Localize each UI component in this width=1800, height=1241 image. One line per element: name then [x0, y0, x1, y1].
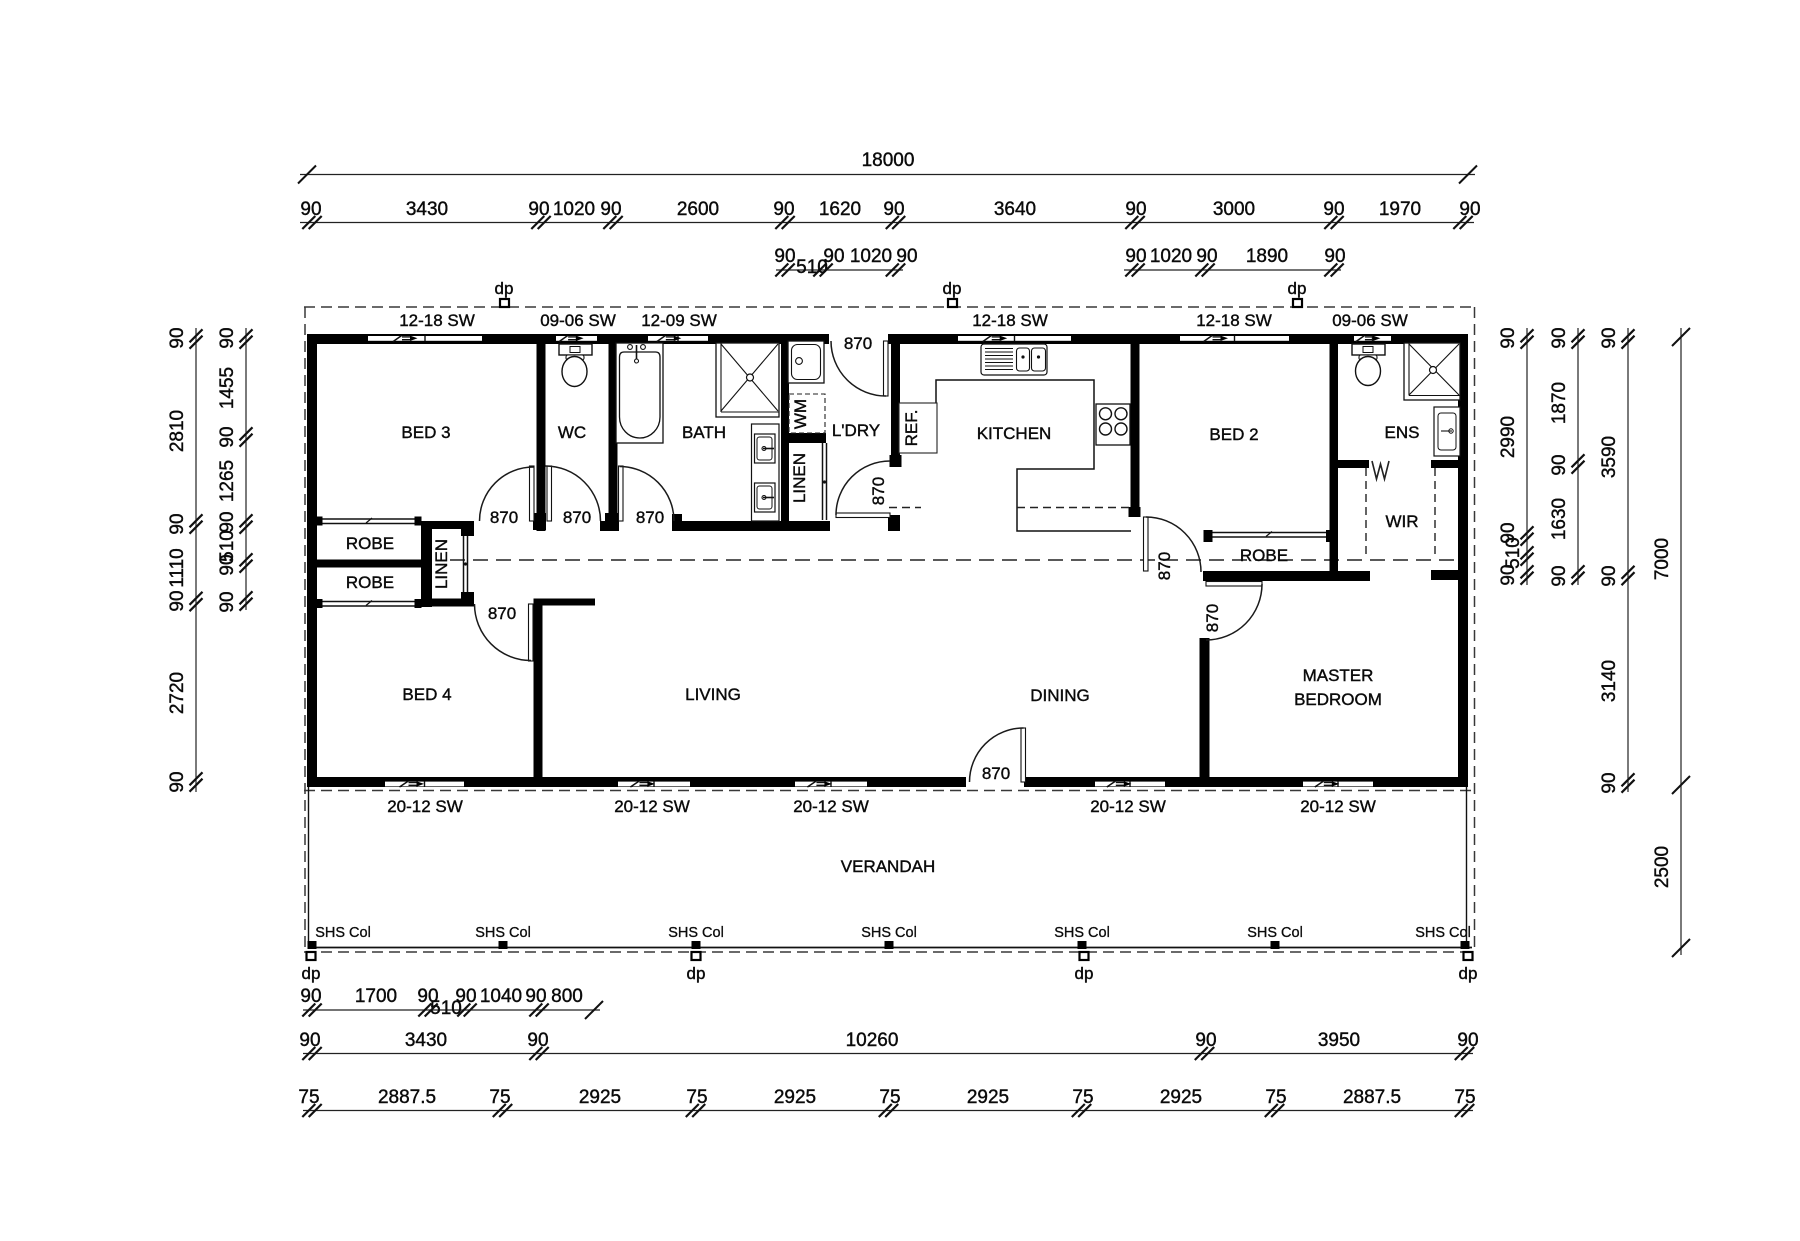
- svg-text:870: 870: [1155, 552, 1174, 580]
- svg-text:1040: 1040: [480, 986, 522, 1007]
- svg-text:90: 90: [1125, 246, 1146, 267]
- svg-text:20-12 SW: 20-12 SW: [1090, 797, 1166, 816]
- svg-text:870: 870: [488, 604, 516, 623]
- svg-text:dp: dp: [687, 964, 706, 983]
- svg-text:90: 90: [528, 199, 549, 220]
- svg-text:ROBE: ROBE: [346, 573, 394, 592]
- svg-text:REF.: REF.: [902, 410, 921, 447]
- svg-text:LINEN: LINEN: [432, 539, 451, 589]
- svg-text:2887.5: 2887.5: [378, 1087, 436, 1108]
- svg-text:SHS Col: SHS Col: [475, 925, 531, 941]
- svg-text:2720: 2720: [167, 672, 188, 714]
- svg-text:870: 870: [1203, 604, 1222, 632]
- svg-text:90: 90: [217, 426, 238, 447]
- svg-text:12-18 SW: 12-18 SW: [399, 311, 475, 330]
- svg-text:KITCHEN: KITCHEN: [977, 424, 1052, 443]
- svg-text:LINEN: LINEN: [790, 453, 809, 503]
- svg-text:WC: WC: [558, 423, 586, 442]
- svg-text:L'DRY: L'DRY: [832, 421, 880, 440]
- svg-text:90: 90: [1599, 327, 1620, 348]
- svg-text:1455: 1455: [217, 367, 238, 409]
- svg-text:BED 2: BED 2: [1209, 425, 1258, 444]
- svg-text:dp: dp: [1459, 964, 1478, 983]
- svg-text:90: 90: [217, 591, 238, 612]
- svg-text:3430: 3430: [406, 199, 448, 220]
- svg-text:90: 90: [1323, 199, 1344, 220]
- svg-text:2925: 2925: [579, 1087, 621, 1108]
- svg-text:SHS Col: SHS Col: [861, 925, 917, 941]
- svg-text:dp: dp: [943, 279, 962, 298]
- svg-text:90: 90: [527, 1030, 548, 1051]
- svg-text:870: 870: [563, 508, 591, 527]
- svg-text:1870: 1870: [1549, 382, 1570, 424]
- svg-text:510: 510: [796, 257, 828, 278]
- svg-text:1020: 1020: [1150, 246, 1192, 267]
- svg-text:870: 870: [869, 477, 888, 505]
- svg-text:3640: 3640: [994, 199, 1036, 220]
- svg-text:2925: 2925: [967, 1087, 1009, 1108]
- svg-text:90: 90: [1324, 246, 1345, 267]
- svg-text:1265: 1265: [217, 460, 238, 502]
- svg-text:ROBE: ROBE: [346, 534, 394, 553]
- svg-text:75: 75: [298, 1087, 319, 1108]
- svg-text:75: 75: [879, 1087, 900, 1108]
- svg-text:90: 90: [217, 554, 238, 575]
- svg-text:90: 90: [1457, 1030, 1478, 1051]
- svg-text:870: 870: [490, 508, 518, 527]
- svg-text:3430: 3430: [405, 1030, 447, 1051]
- svg-text:800: 800: [551, 986, 583, 1007]
- svg-text:90: 90: [600, 199, 621, 220]
- svg-text:510: 510: [430, 998, 462, 1019]
- svg-text:90: 90: [167, 327, 188, 348]
- svg-text:BEDROOM: BEDROOM: [1294, 690, 1382, 709]
- svg-text:3000: 3000: [1213, 199, 1255, 220]
- svg-text:ENS: ENS: [1385, 423, 1420, 442]
- svg-text:1630: 1630: [1549, 498, 1570, 540]
- svg-text:870: 870: [982, 764, 1010, 783]
- svg-text:90: 90: [1549, 565, 1570, 586]
- svg-text:ROBE: ROBE: [1240, 546, 1288, 565]
- svg-text:10260: 10260: [846, 1030, 899, 1051]
- svg-text:1110: 1110: [167, 548, 188, 587]
- svg-text:SHS Col: SHS Col: [1247, 925, 1303, 941]
- svg-text:20-12 SW: 20-12 SW: [614, 797, 690, 816]
- svg-text:75: 75: [1265, 1087, 1286, 1108]
- svg-text:DINING: DINING: [1030, 686, 1090, 705]
- svg-text:90: 90: [1459, 199, 1480, 220]
- svg-text:75: 75: [1454, 1087, 1475, 1108]
- svg-text:90: 90: [167, 590, 188, 611]
- svg-text:90: 90: [883, 199, 904, 220]
- svg-text:SHS Col: SHS Col: [315, 925, 371, 941]
- svg-text:1020: 1020: [850, 246, 892, 267]
- svg-text:dp: dp: [302, 964, 321, 983]
- svg-text:WM: WM: [791, 399, 810, 429]
- svg-text:90: 90: [299, 1030, 320, 1051]
- svg-text:18000: 18000: [862, 150, 915, 171]
- svg-text:20-12 SW: 20-12 SW: [1300, 797, 1376, 816]
- svg-text:SHS Col: SHS Col: [668, 925, 724, 941]
- svg-text:SHS Col: SHS Col: [1054, 925, 1110, 941]
- svg-text:90: 90: [1498, 564, 1519, 585]
- svg-text:12-18 SW: 12-18 SW: [1196, 311, 1272, 330]
- svg-text:WIR: WIR: [1385, 512, 1418, 531]
- svg-text:90: 90: [217, 511, 238, 532]
- svg-text:75: 75: [489, 1087, 510, 1108]
- svg-text:90: 90: [217, 327, 238, 348]
- svg-text:2925: 2925: [774, 1087, 816, 1108]
- svg-text:MASTER: MASTER: [1303, 666, 1374, 685]
- svg-text:1970: 1970: [1379, 199, 1421, 220]
- svg-text:90: 90: [525, 986, 546, 1007]
- svg-text:90: 90: [1196, 246, 1217, 267]
- svg-text:2990: 2990: [1498, 416, 1519, 458]
- svg-text:dp: dp: [1288, 279, 1307, 298]
- svg-text:510: 510: [1503, 537, 1524, 569]
- svg-text:75: 75: [686, 1087, 707, 1108]
- svg-text:90: 90: [1549, 327, 1570, 348]
- svg-text:20-12 SW: 20-12 SW: [387, 797, 463, 816]
- svg-text:2600: 2600: [677, 199, 719, 220]
- svg-text:dp: dp: [1075, 964, 1094, 983]
- svg-text:2925: 2925: [1160, 1087, 1202, 1108]
- svg-text:90: 90: [1125, 199, 1146, 220]
- svg-text:3140: 3140: [1599, 660, 1620, 702]
- svg-text:2887.5: 2887.5: [1343, 1087, 1401, 1108]
- svg-text:7000: 7000: [1652, 538, 1673, 580]
- svg-text:20-12 SW: 20-12 SW: [793, 797, 869, 816]
- svg-text:90: 90: [1498, 327, 1519, 348]
- svg-text:3950: 3950: [1318, 1030, 1360, 1051]
- svg-text:90: 90: [774, 246, 795, 267]
- svg-text:870: 870: [636, 508, 664, 527]
- svg-text:VERANDAH: VERANDAH: [841, 857, 935, 876]
- svg-text:BATH: BATH: [682, 423, 726, 442]
- svg-text:LIVING: LIVING: [685, 685, 741, 704]
- svg-text:90: 90: [300, 199, 321, 220]
- svg-text:2810: 2810: [167, 410, 188, 452]
- svg-text:75: 75: [1072, 1087, 1093, 1108]
- svg-text:90: 90: [167, 771, 188, 792]
- svg-text:BED 3: BED 3: [401, 423, 450, 442]
- svg-text:90: 90: [773, 199, 794, 220]
- svg-text:3590: 3590: [1599, 436, 1620, 478]
- svg-text:90: 90: [167, 513, 188, 534]
- svg-text:12-09 SW: 12-09 SW: [641, 311, 717, 330]
- svg-text:870: 870: [844, 334, 872, 353]
- svg-text:90: 90: [896, 246, 917, 267]
- svg-text:90: 90: [1549, 454, 1570, 475]
- svg-text:90: 90: [1195, 1030, 1216, 1051]
- svg-text:1890: 1890: [1246, 246, 1288, 267]
- svg-text:09-06 SW: 09-06 SW: [540, 311, 616, 330]
- svg-text:09-06 SW: 09-06 SW: [1332, 311, 1408, 330]
- svg-text:1020: 1020: [553, 199, 595, 220]
- svg-text:1700: 1700: [355, 986, 397, 1007]
- svg-text:12-18 SW: 12-18 SW: [972, 311, 1048, 330]
- svg-text:2500: 2500: [1652, 846, 1673, 888]
- svg-text:90: 90: [300, 986, 321, 1007]
- svg-text:SHS Col: SHS Col: [1415, 925, 1471, 941]
- svg-text:90: 90: [1599, 772, 1620, 793]
- svg-text:90: 90: [1599, 565, 1620, 586]
- svg-text:BED 4: BED 4: [402, 685, 451, 704]
- svg-text:dp: dp: [495, 279, 514, 298]
- svg-text:1620: 1620: [819, 199, 861, 220]
